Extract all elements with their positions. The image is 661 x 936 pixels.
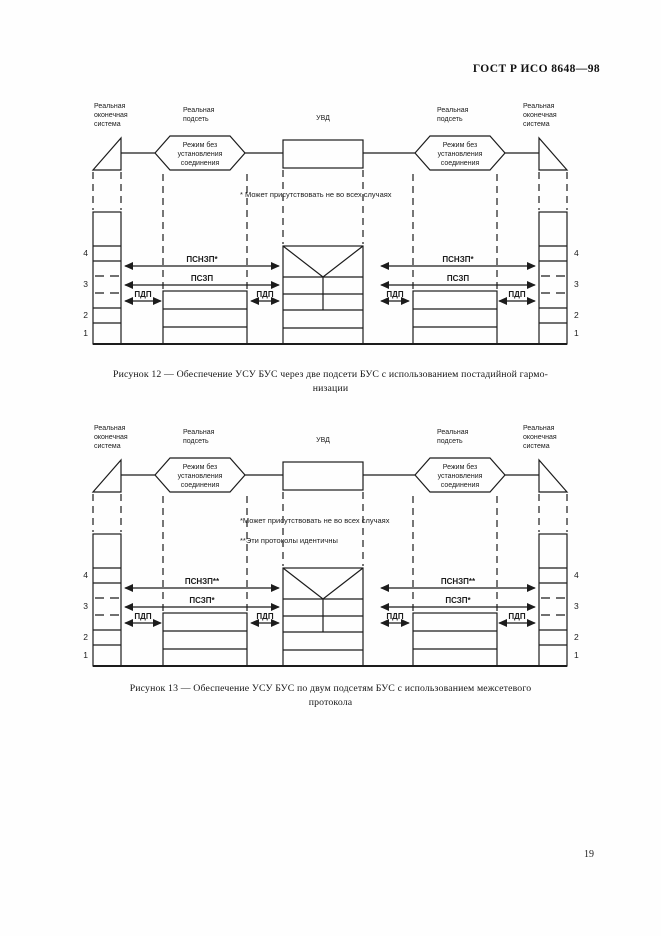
stack-layer-lines: [93, 246, 567, 328]
figure-12-diagram: Реальная оконечная система Реальная подс…: [0, 98, 661, 353]
right-end-system-label: система: [523, 443, 550, 450]
right-subnet-label: подсеть: [437, 116, 463, 123]
left-hexagon-text: соединения: [181, 482, 220, 489]
right-subnet-stack: [413, 613, 497, 666]
figure-12-caption: Рисунок 12 — Обеспечение УСУ БУС через д…: [0, 368, 661, 396]
pszp-label-left: ПСЗП: [191, 274, 213, 283]
pdp-label: ПДП: [134, 290, 151, 299]
footnote-asterisk: * Может присутствовать не во всех случая…: [240, 190, 392, 199]
layer-number-right: 3: [574, 279, 579, 289]
layer-number-right: 2: [574, 310, 579, 320]
left-end-system-label: оконечная: [94, 434, 128, 441]
psnzp-label-right: ПСНЗП**: [441, 577, 476, 586]
layer-number-right: 2: [574, 632, 579, 642]
left-subnet-stack: [163, 613, 247, 666]
layer-number-left: 3: [83, 279, 88, 289]
uvd-label: УВД: [316, 115, 330, 122]
left-subnet-label: подсеть: [183, 438, 209, 445]
layer-number-right: 1: [574, 650, 579, 660]
pdp-label: ПДП: [256, 290, 273, 299]
layer-number-right: 1: [574, 328, 579, 338]
layer-number-right: 4: [574, 248, 579, 258]
pdp-label: ПДП: [508, 290, 525, 299]
left-subnet-stack: [163, 291, 247, 344]
right-subnet-stack: [413, 291, 497, 344]
right-end-system-triangle: [539, 138, 567, 170]
footnote-asterisk: *Может присутствовать не во всех случаях: [240, 516, 390, 525]
right-end-system-stack: [539, 534, 567, 666]
left-hexagon-text: соединения: [181, 160, 220, 167]
left-end-system-label: Реальная: [94, 425, 126, 432]
left-end-system-stack: [93, 212, 121, 344]
document-page: ГОСТ Р ИСО 8648—98: [0, 0, 661, 936]
right-end-system-label: система: [523, 121, 550, 128]
layer-number-left: 4: [83, 248, 88, 258]
psnzp-label-left: ПСНЗП**: [185, 577, 220, 586]
right-hexagon-text: установления: [438, 473, 483, 480]
left-subnet-label: подсеть: [183, 116, 209, 123]
pdp-label: ПДП: [134, 612, 151, 621]
right-hexagon-text: соединения: [441, 160, 480, 167]
relay-v-shape: [283, 246, 363, 310]
diagram-structure: [93, 458, 567, 666]
right-subnet-label: Реальная: [437, 429, 469, 436]
stack-layer-lines: [93, 568, 567, 650]
right-subnet-label: Реальная: [437, 107, 469, 114]
right-hexagon-text: Режим без: [443, 141, 477, 149]
left-hexagon-text: Режим без: [183, 141, 217, 149]
right-hexagon-text: Режим без: [443, 463, 477, 471]
right-end-system-label: оконечная: [523, 434, 557, 441]
psnzp-label-left: ПСНЗП*: [186, 255, 218, 264]
layer-number-left: 1: [83, 328, 88, 338]
caption-line: низации: [0, 382, 661, 396]
left-end-system-label: система: [94, 443, 121, 450]
right-end-system-stack: [539, 212, 567, 344]
left-hexagon-text: установления: [178, 473, 223, 480]
right-end-system-triangle: [539, 460, 567, 492]
right-hexagon-text: соединения: [441, 482, 480, 489]
left-end-system-label: Реальная: [94, 103, 126, 110]
left-hexagon-text: Режим без: [183, 463, 217, 471]
footnote-double-asterisk: **Эти протоколы идентичны: [240, 536, 338, 545]
caption-line: Рисунок 12 — Обеспечение УСУ БУС через д…: [0, 368, 661, 382]
diagram-labels: Реальная оконечная система Реальная подс…: [83, 103, 579, 338]
right-subnet-label: подсеть: [437, 438, 463, 445]
left-end-system-label: оконечная: [94, 112, 128, 119]
left-subnet-label: Реальная: [183, 107, 215, 114]
layer-number-left: 3: [83, 601, 88, 611]
left-hexagon-text: установления: [178, 151, 223, 158]
caption-line: Рисунок 13 — Обеспечение УСУ БУС по двум…: [0, 682, 661, 696]
uvd-box: [283, 140, 363, 168]
pdp-label: ПДП: [508, 612, 525, 621]
diagram-structure: [93, 136, 567, 344]
left-end-system-stack: [93, 534, 121, 666]
right-end-system-label: Реальная: [523, 425, 555, 432]
layer-number-right: 3: [574, 601, 579, 611]
pdp-label: ПДП: [386, 290, 403, 299]
right-hexagon-text: установления: [438, 151, 483, 158]
uvd-label: УВД: [316, 437, 330, 444]
page-number: 19: [584, 849, 594, 860]
uvd-box: [283, 462, 363, 490]
layer-number-left: 2: [83, 632, 88, 642]
pszp-label-left: ПСЗП*: [189, 596, 215, 605]
layer-number-right: 4: [574, 570, 579, 580]
figure-13-caption: Рисунок 13 — Обеспечение УСУ БУС по двум…: [0, 682, 661, 710]
pdp-label: ПДП: [256, 612, 273, 621]
layer-number-left: 1: [83, 650, 88, 660]
pdp-label: ПДП: [386, 612, 403, 621]
left-end-system-label: система: [94, 121, 121, 128]
pszp-label-right: ПСЗП*: [445, 596, 471, 605]
diagram-labels: Реальная оконечная система Реальная подс…: [83, 425, 579, 660]
figure-13-diagram: Реальная оконечная система Реальная подс…: [0, 420, 661, 675]
psnzp-label-right: ПСНЗП*: [442, 255, 474, 264]
relay-v-shape: [283, 568, 363, 632]
left-subnet-label: Реальная: [183, 429, 215, 436]
pszp-label-right: ПСЗП: [447, 274, 469, 283]
right-end-system-label: оконечная: [523, 112, 557, 119]
layer-number-left: 2: [83, 310, 88, 320]
document-header: ГОСТ Р ИСО 8648—98: [473, 63, 600, 75]
caption-line: протокола: [0, 696, 661, 710]
left-end-system-triangle: [93, 460, 121, 492]
left-end-system-triangle: [93, 138, 121, 170]
right-end-system-label: Реальная: [523, 103, 555, 110]
layer-number-left: 4: [83, 570, 88, 580]
